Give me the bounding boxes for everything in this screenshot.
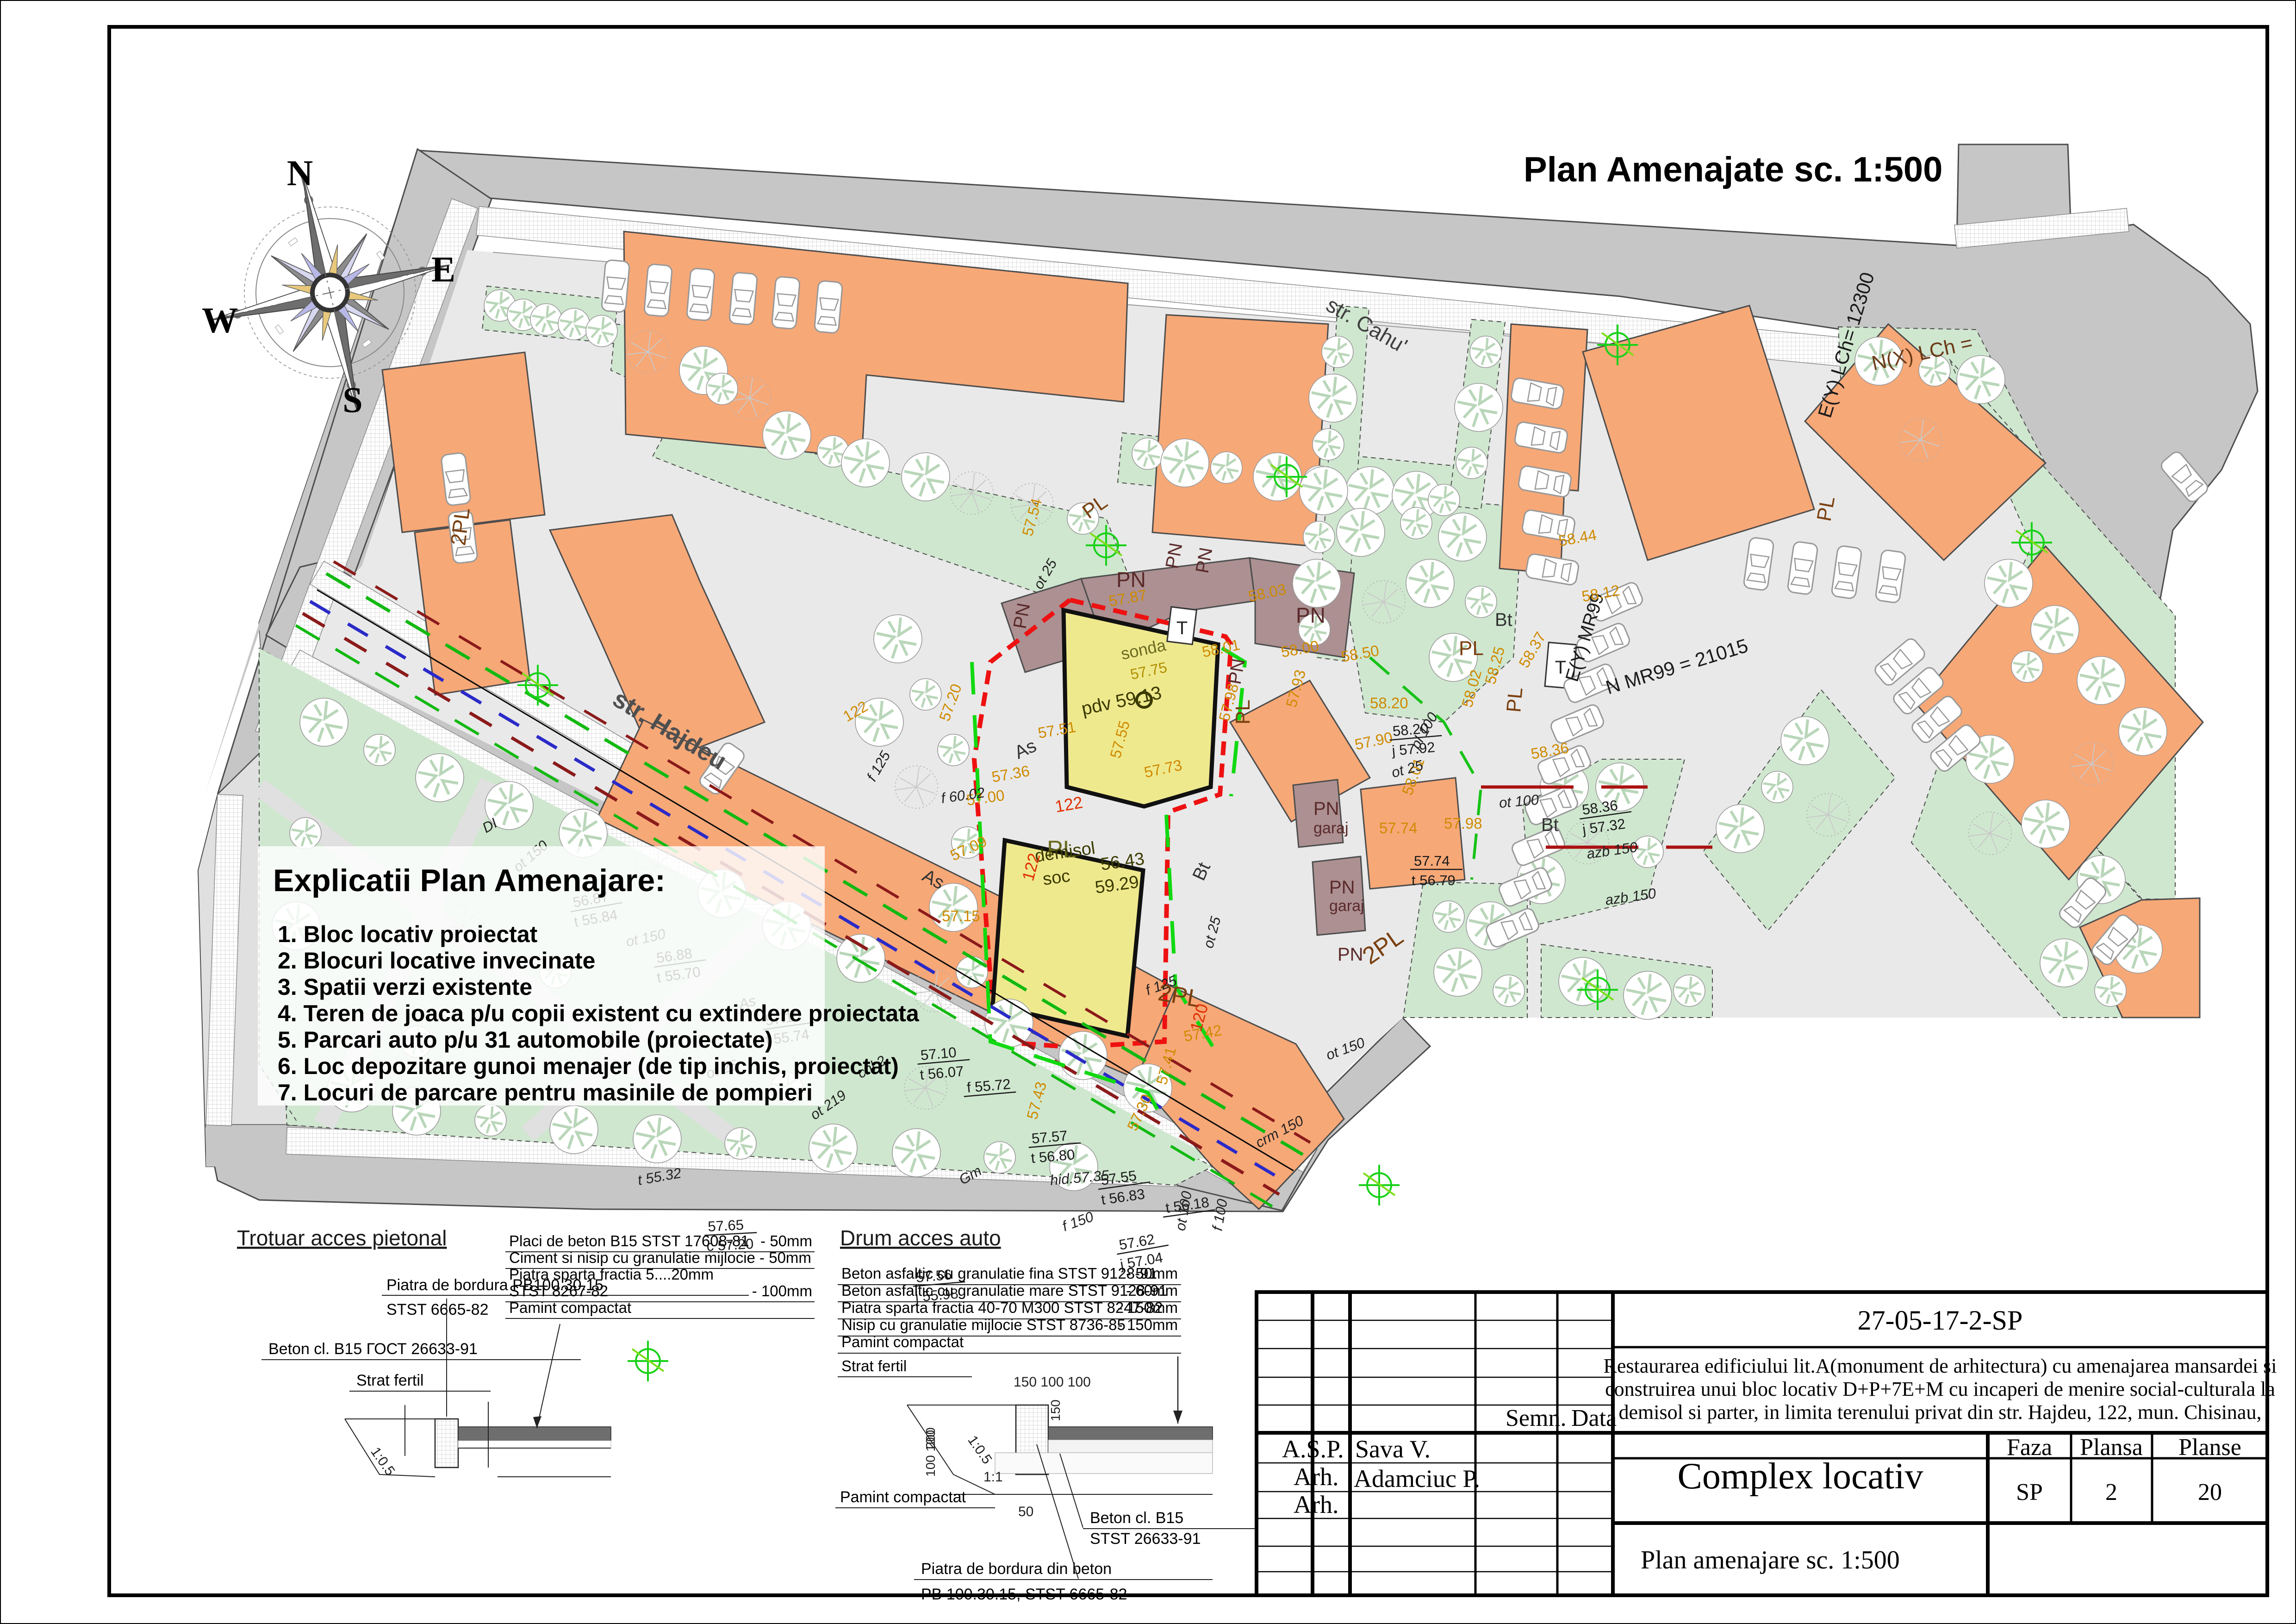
svg-text:Placi de beton B15 STST 17608-: Placi de beton B15 STST 17608-81 [509,1232,749,1249]
svg-text:50: 50 [1018,1504,1033,1519]
svg-text:Semn.: Semn. [1506,1405,1566,1431]
svg-text:PN: PN [1296,603,1325,627]
svg-text:7. Locuri de parcare pentru ma: 7. Locuri de parcare pentru masinile de … [278,1080,813,1106]
svg-text:garaj: garaj [1329,897,1364,915]
svg-text:N: N [287,153,313,193]
svg-text:ot 100: ot 100 [1499,792,1540,811]
svg-text:garaj: garaj [1313,819,1349,837]
svg-text:2. Blocuri locative invecinate: 2. Blocuri locative invecinate [278,948,595,974]
svg-text:Strat fertil: Strat fertil [841,1357,907,1374]
svg-text:57.74: 57.74 [1414,853,1450,869]
svg-text:150 100 100: 150 100 100 [1014,1374,1091,1390]
svg-text:57.74: 57.74 [1379,819,1418,837]
svg-text:57.98: 57.98 [1444,815,1482,832]
svg-text:W: W [202,300,238,340]
svg-text:Beton cl. B15: Beton cl. B15 [1090,1509,1183,1527]
svg-text:100 100: 100 100 [923,1430,938,1477]
svg-text:Data: Data [1571,1405,1617,1431]
svg-text:Beton asfaltic cu granulatie f: Beton asfaltic cu granulatie fina STST 9… [841,1265,1157,1282]
svg-text:Drum acces auto: Drum acces auto [840,1226,1001,1250]
svg-text:Arh.: Arh. [1294,1463,1338,1491]
svg-text:PL: PL [1459,637,1484,660]
svg-text:SP: SP [2016,1479,2043,1505]
svg-text:Bt: Bt [1541,815,1559,835]
svg-text:construirea unui bloc locativ: construirea unui bloc locativ D+P+7E+M c… [1605,1378,2275,1400]
svg-text:1. Bloc locativ proiectat: 1. Bloc locativ proiectat [278,921,538,947]
svg-text:27-05-17-2-SP: 27-05-17-2-SP [1858,1305,2023,1336]
svg-text:S: S [342,380,362,420]
svg-text:Explicatii Plan Amenajare:: Explicatii Plan Amenajare: [273,863,666,898]
svg-text:Plan Amenajate sc. 1:500: Plan Amenajate sc. 1:500 [1524,150,1942,189]
svg-text:Bt: Bt [1495,610,1512,630]
svg-text:Adamciuc P.: Adamciuc P. [1354,1465,1480,1493]
svg-text:PL: PL [1502,687,1527,713]
svg-text:STST 6665-82: STST 6665-82 [386,1301,489,1318]
svg-text:Complex locativ: Complex locativ [1677,1456,1923,1497]
svg-text:T: T [1176,618,1188,638]
svg-text:5. Parcari auto p/u 31 automob: 5. Parcari auto p/u 31 automobile (proie… [278,1027,773,1053]
svg-text:Pamint compactat: Pamint compactat [840,1488,966,1506]
svg-text:57.15: 57.15 [942,907,980,924]
svg-text:Arh.: Arh. [1294,1491,1338,1518]
svg-text:3. Spatii verzi existente: 3. Spatii verzi existente [278,974,532,1000]
svg-text:- 50mm: - 50mm [1126,1265,1178,1282]
svg-text:Restaurarea edificiului lit.A(: Restaurarea edificiului lit.A(monument d… [1603,1355,2277,1377]
svg-text:2PL: 2PL [446,506,474,547]
svg-text:Planse: Planse [2178,1434,2241,1461]
svg-text:4. Teren de joaca p/u copii ex: 4. Teren de joaca p/u copii existent cu … [278,1000,920,1026]
svg-text:STST 8267-82: STST 8267-82 [509,1282,608,1299]
svg-text:58.20: 58.20 [1370,694,1408,712]
svg-text:PN: PN [1313,799,1339,819]
svg-text:demisol si parter, in limita t: demisol si parter, in limita terenului p… [1619,1401,2262,1424]
svg-text:t 56.79: t 56.79 [1412,872,1456,888]
svg-text:Piatra de bordura din beton: Piatra de bordura din beton [921,1560,1112,1578]
svg-text:Sava V.: Sava V. [1355,1435,1431,1463]
svg-text:Trotuar acces pietonal: Trotuar acces pietonal [237,1226,447,1250]
svg-text:PN: PN [1329,877,1355,898]
svg-text:57.10: 57.10 [920,1044,957,1063]
svg-text:soc: soc [1041,866,1071,889]
svg-text:2: 2 [2105,1479,2117,1505]
svg-text:PL: PL [1813,494,1840,523]
svg-text:Faza: Faza [2007,1434,2052,1461]
svg-text:6. Loc depozitare gunoi menaje: 6. Loc depozitare gunoi menajer (de tip … [278,1053,899,1079]
svg-text:- 50mm: - 50mm [760,1232,812,1249]
svg-text:150: 150 [1048,1399,1063,1421]
svg-text:A.S.P.: A.S.P. [1282,1435,1344,1463]
svg-text:20: 20 [2198,1479,2222,1505]
svg-text:E: E [431,249,455,289]
svg-text:57.57: 57.57 [1031,1127,1068,1147]
svg-text:Plansa: Plansa [2080,1434,2143,1461]
svg-text:- 100mm: - 100mm [752,1282,812,1299]
svg-text:1:1: 1:1 [983,1469,1003,1485]
svg-text:Plan amenajare sc. 1:500: Plan amenajare sc. 1:500 [1641,1546,1900,1574]
svg-text:Strat fertil: Strat fertil [356,1372,423,1389]
svg-text:STST 26633-91: STST 26633-91 [1090,1530,1201,1548]
